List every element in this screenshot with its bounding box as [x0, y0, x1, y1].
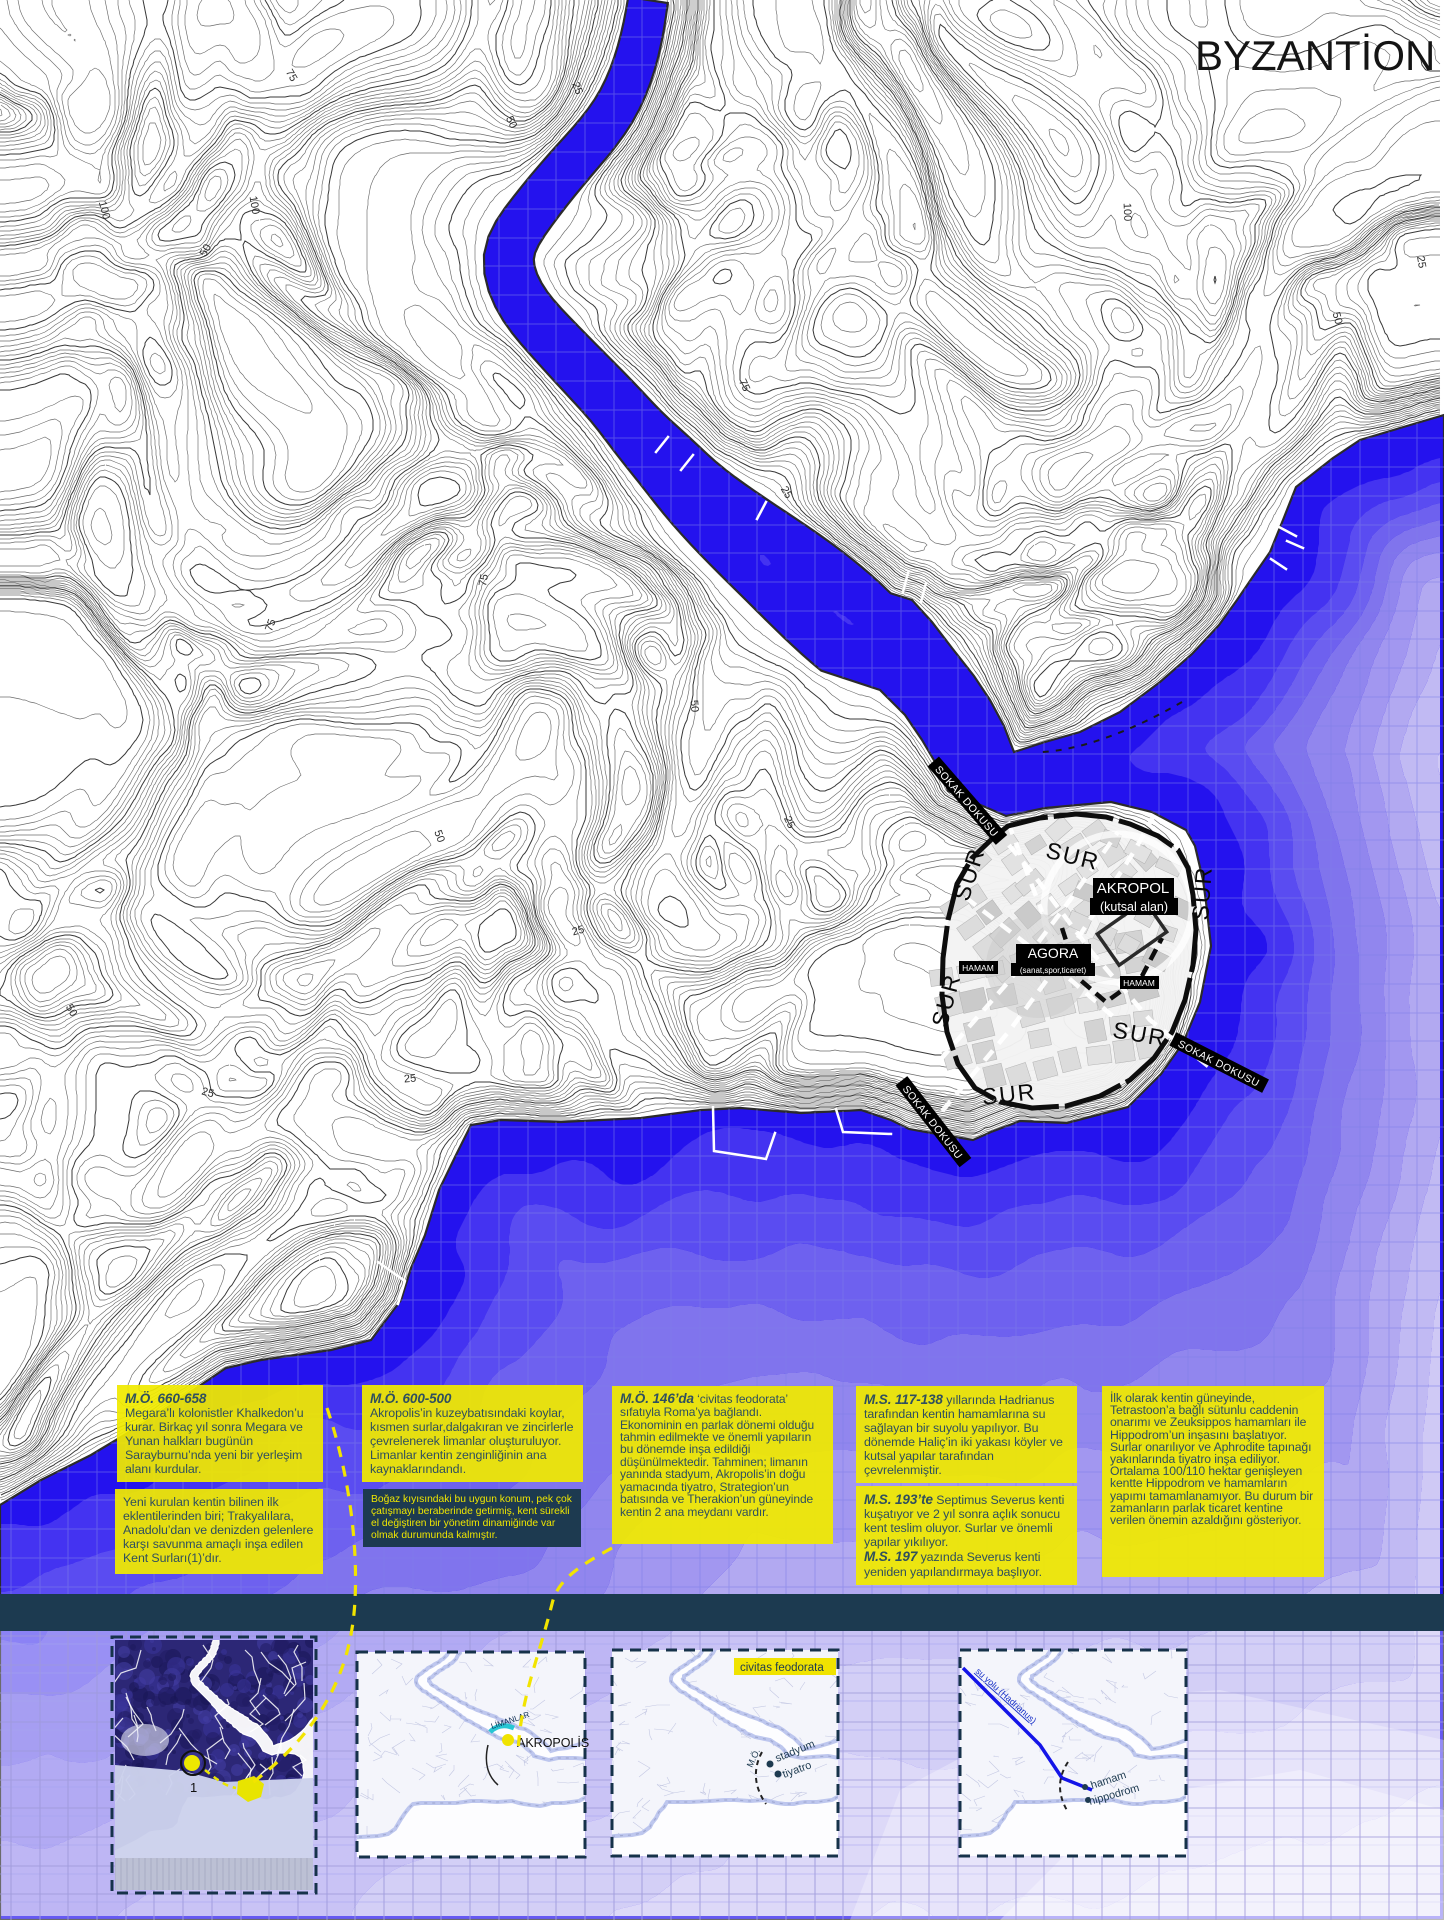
svg-text:civitas feodorata: civitas feodorata — [740, 1662, 824, 1674]
svg-text:AGORA: AGORA — [1028, 945, 1079, 961]
svg-text:AKROPOL: AKROPOL — [1097, 880, 1170, 897]
svg-text:50: 50 — [687, 699, 700, 712]
svg-text:AKROPOLİS: AKROPOLİS — [517, 1736, 589, 1750]
svg-text:(sanat,spor,ticaret): (sanat,spor,ticaret) — [1020, 966, 1087, 975]
svg-text:(kutsal alan): (kutsal alan) — [1100, 900, 1168, 914]
svg-text:25: 25 — [1414, 255, 1428, 269]
svg-text:HAMAM: HAMAM — [1123, 978, 1155, 988]
svg-text:100: 100 — [1121, 203, 1134, 222]
svg-text:25: 25 — [403, 1072, 416, 1085]
svg-text:75: 75 — [477, 573, 491, 587]
svg-text:1: 1 — [190, 1780, 197, 1795]
svg-text:HAMAM: HAMAM — [962, 963, 994, 973]
svg-text:SUR: SUR — [1187, 865, 1217, 921]
